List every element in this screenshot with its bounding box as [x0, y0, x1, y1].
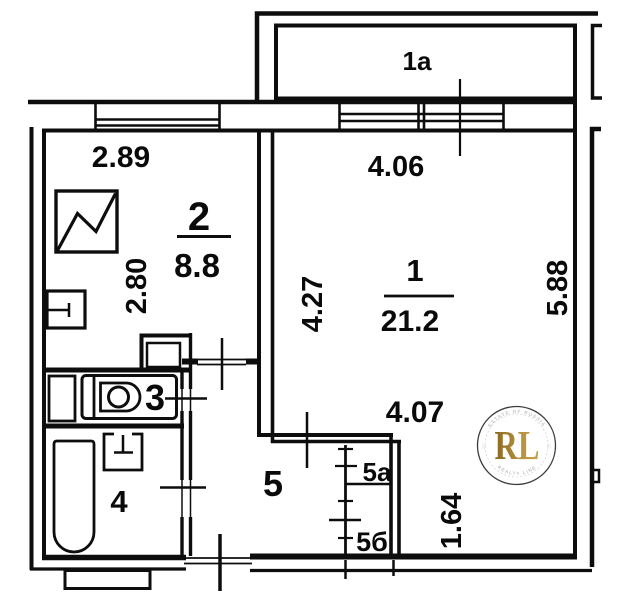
- svg-text:1а: 1а: [403, 46, 432, 76]
- svg-text:4: 4: [110, 484, 128, 519]
- svg-text:3: 3: [145, 377, 165, 418]
- svg-text:4.06: 4.06: [368, 151, 424, 183]
- svg-text:◇: ◇: [482, 444, 487, 450]
- svg-text:21.2: 21.2: [381, 305, 439, 338]
- svg-text:RL: RL: [495, 422, 540, 468]
- svg-text:5: 5: [263, 463, 283, 504]
- svg-text:4.27: 4.27: [297, 276, 329, 332]
- svg-text:1: 1: [406, 253, 423, 288]
- svg-text:5.88: 5.88: [542, 260, 574, 316]
- svg-text:5б: 5б: [356, 527, 388, 557]
- svg-text:4.07: 4.07: [386, 396, 444, 429]
- svg-text:2.89: 2.89: [92, 141, 150, 174]
- svg-text:8.8: 8.8: [174, 247, 220, 284]
- svg-text:1.64: 1.64: [436, 493, 468, 549]
- svg-text:5а: 5а: [363, 457, 392, 487]
- svg-text:2: 2: [188, 195, 210, 239]
- svg-text:2.80: 2.80: [121, 258, 153, 314]
- svg-text:◇: ◇: [547, 444, 552, 450]
